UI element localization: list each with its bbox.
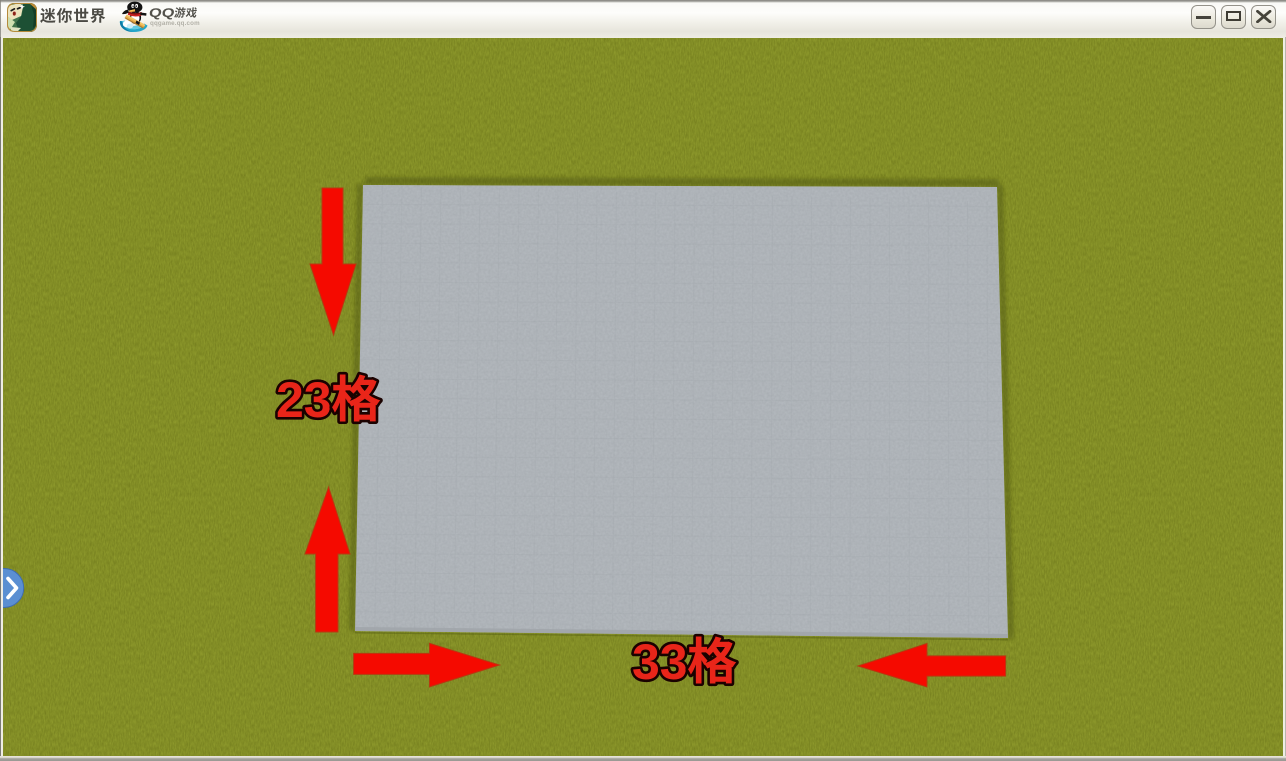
svg-text:QQ: QQ: [148, 7, 175, 20]
svg-text:23: 23: [276, 372, 332, 428]
svg-text:33: 33: [632, 634, 688, 690]
